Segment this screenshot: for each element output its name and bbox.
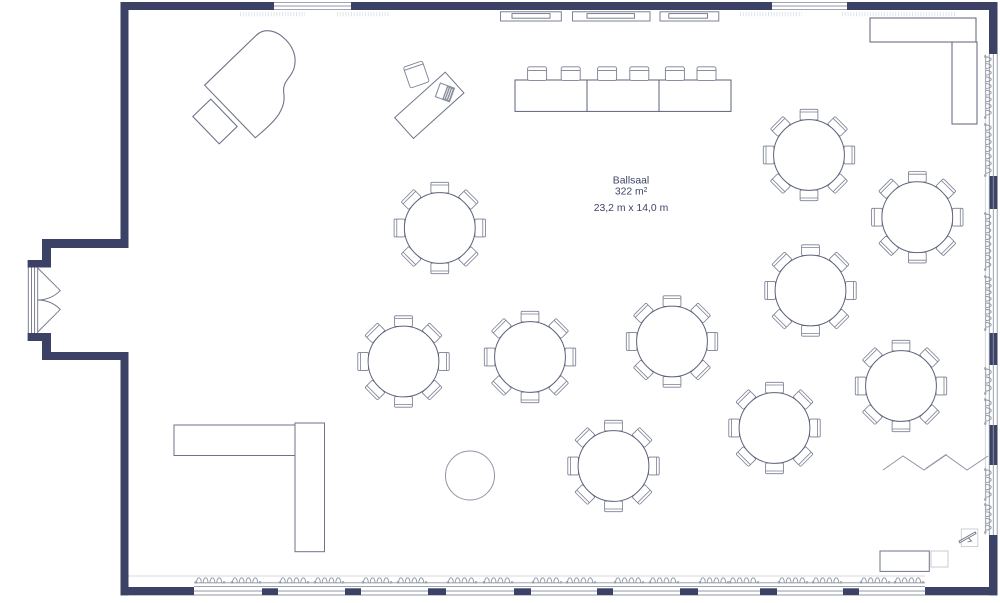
svg-text:322 m²: 322 m² [615, 187, 648, 198]
svg-text:Ballsaal: Ballsaal [613, 175, 649, 186]
svg-text:23,2 m x 14,0 m: 23,2 m x 14,0 m [594, 203, 669, 214]
